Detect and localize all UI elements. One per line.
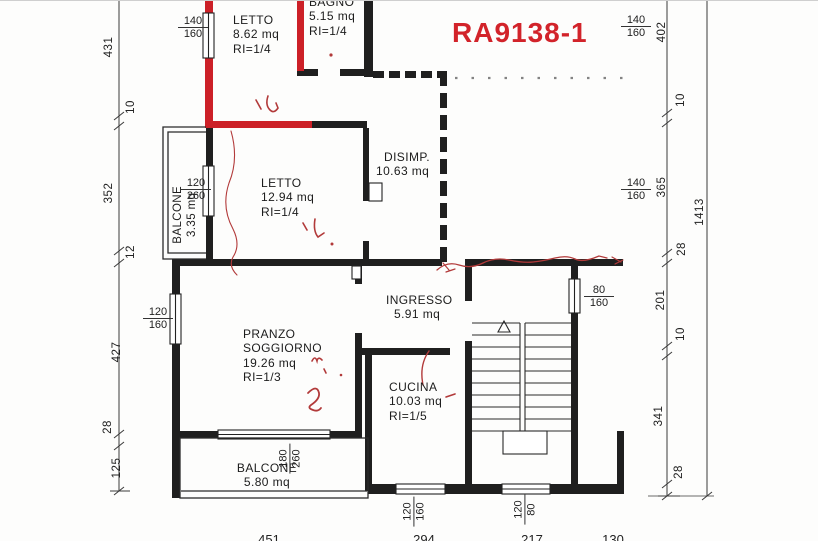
- dim-right-365: 365: [656, 169, 668, 205]
- opening-label-140-160-topright: 140160: [621, 14, 651, 39]
- dim-right-402: 402: [656, 14, 668, 50]
- dim-left-427: 427: [111, 334, 123, 370]
- dim-left-352: 352: [103, 175, 115, 211]
- opening-label-120-160-soggiorno: 120160: [143, 306, 173, 331]
- dim-right-201: 201: [655, 282, 667, 318]
- opening-label-180-260: 180260: [277, 444, 302, 474]
- room-label-bagno: BAGNO5.15 mqRI=1/4: [309, 0, 355, 38]
- opening-label-120-260: 120260: [181, 177, 211, 202]
- dim-left-10: 10: [125, 89, 137, 125]
- dim-left-12: 12: [125, 234, 137, 270]
- room-label-balcone1: BALCONE3.35 mq: [172, 150, 200, 280]
- room-label-soggiorno: PRANZOSOGGIORNO 19.26 mqRI=1/3: [243, 327, 322, 385]
- plan-code-label: RA9138-1: [452, 17, 588, 49]
- room-label-cucina: CUCINA10.03 mqRI=1/5: [389, 380, 442, 423]
- room-label-balcone2: BALCONE5.80 mq: [202, 461, 332, 490]
- opening-label-140-160-midright: 140160: [621, 177, 651, 202]
- window-stairs-east: [569, 279, 580, 313]
- window-bottom-right: [502, 484, 550, 494]
- window-cucina-south: [396, 484, 445, 494]
- windows: [170, 13, 580, 494]
- opening-label-140-160-topleft: 140160: [178, 15, 208, 40]
- dim-left-125: 125: [111, 450, 123, 486]
- dim-right-28b: 28: [673, 454, 685, 490]
- dim-right-28a: 28: [676, 231, 688, 267]
- door-jamb-soggiorno: [352, 266, 361, 279]
- door-jamb-disimpegno: [369, 183, 382, 201]
- room-label-disimpegno: DISIMP.10.63 mq: [376, 150, 430, 179]
- dim-right-10b: 10: [675, 316, 687, 352]
- dim-left-28: 28: [102, 409, 114, 445]
- dim-right-10a: 10: [675, 82, 687, 118]
- dim-left-431: 431: [103, 29, 115, 65]
- room-label-letto2: LETTO12.94 mqRI=1/4: [261, 176, 314, 219]
- room-label-letto1: LETTO8.62 mqRI=1/4: [233, 13, 279, 56]
- opening-label-80-160: 80160: [584, 284, 614, 309]
- room-label-ingresso: INGRESSO5.91 mq: [386, 293, 453, 322]
- staircase: [472, 321, 571, 454]
- opening-label-120-160-cucina: 120160: [401, 497, 426, 527]
- dim-right-341: 341: [653, 398, 665, 434]
- dim-right-total-1413: 1413: [694, 194, 706, 230]
- opening-label-120-80: 12080: [512, 495, 537, 525]
- floor-plan-canvas: RA9138-1 LETTO8.62 mqRI=1/4 BAGNO5.15 mq…: [0, 0, 818, 541]
